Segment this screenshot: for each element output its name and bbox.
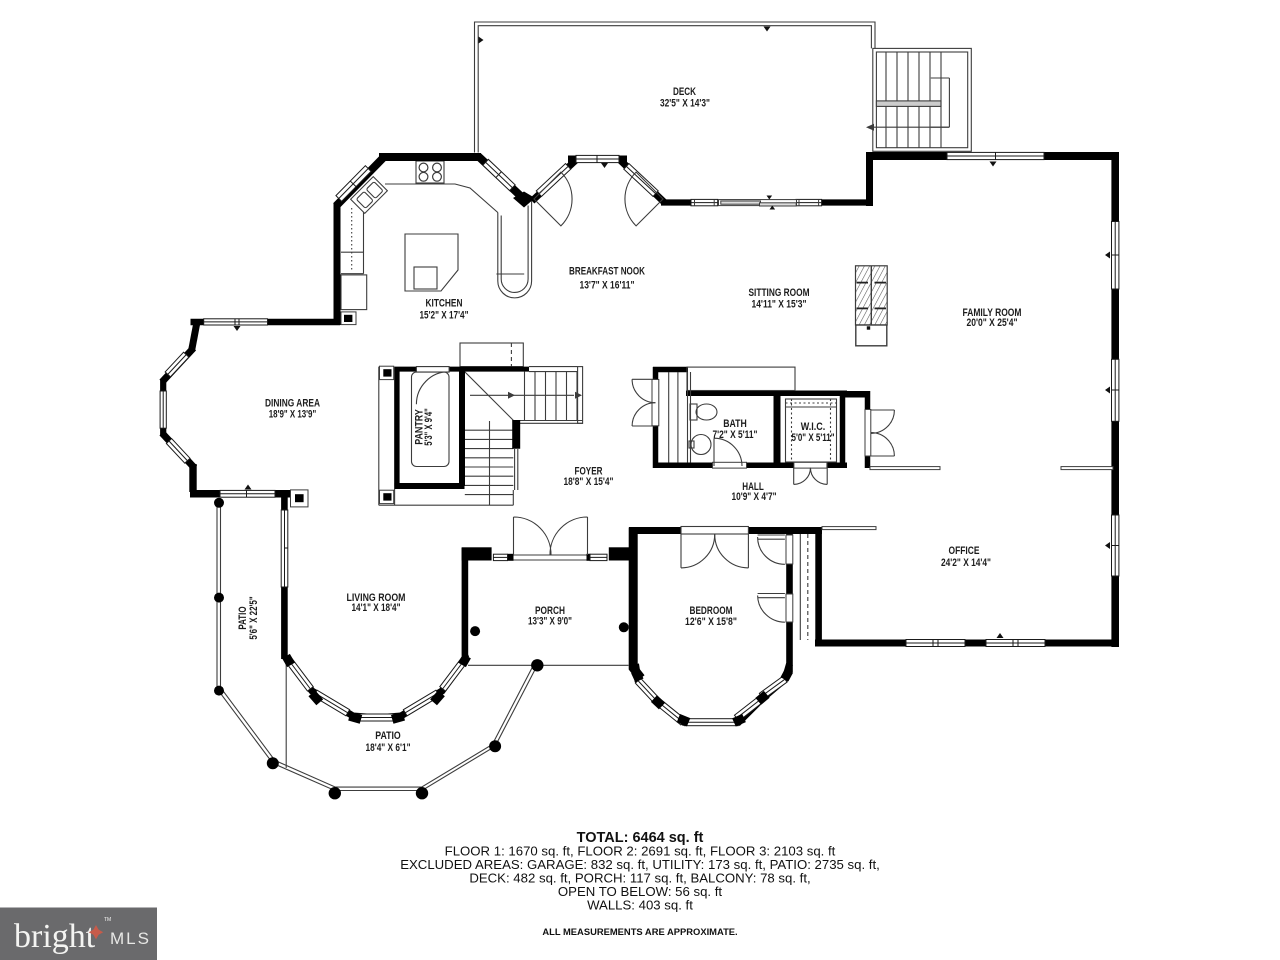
svg-text:5'0" X 5'11": 5'0" X 5'11" [792, 432, 835, 444]
svg-text:13'3" X 9'0": 13'3" X 9'0" [528, 616, 572, 628]
svg-text:20'0" X 25'4": 20'0" X 25'4" [967, 317, 1018, 329]
svg-text:TM: TM [104, 917, 111, 923]
svg-text:18'4" X 6'1": 18'4" X 6'1" [366, 742, 411, 754]
svg-text:5'6" X 22'5": 5'6" X 22'5" [248, 596, 260, 639]
svg-text:ALL MEASUREMENTS ARE APPROXIMA: ALL MEASUREMENTS ARE APPROXIMATE. [542, 926, 737, 937]
svg-text:10'9" X 4'7": 10'9" X 4'7" [732, 491, 777, 503]
svg-text:OFFICE: OFFICE [949, 545, 980, 557]
svg-text:24'2" X 14'4": 24'2" X 14'4" [941, 557, 991, 569]
svg-text:14'11" X 15'3": 14'11" X 15'3" [752, 299, 807, 311]
svg-text:WALLS: 403 sq. ft: WALLS: 403 sq. ft [587, 898, 693, 913]
svg-text:15'2" X 17'4": 15'2" X 17'4" [420, 310, 469, 322]
svg-text:DECK: DECK [673, 86, 697, 98]
svg-text:5'3" X 9'4": 5'3" X 9'4" [423, 408, 435, 446]
svg-text:32'5" X 14'3": 32'5" X 14'3" [660, 98, 710, 110]
svg-text:13'7" X 16'11": 13'7" X 16'11" [580, 280, 635, 292]
svg-text:18'8" X 15'4": 18'8" X 15'4" [564, 476, 614, 488]
svg-text:12'6" X 15'8": 12'6" X 15'8" [685, 616, 737, 628]
svg-text:14'1" X 18'4": 14'1" X 18'4" [352, 602, 401, 614]
svg-text:SITTING ROOM: SITTING ROOM [749, 287, 810, 299]
svg-text:MLS: MLS [110, 929, 151, 948]
svg-text:PATIO: PATIO [375, 730, 401, 742]
svg-text:7'2" X 5'11": 7'2" X 5'11" [713, 429, 758, 441]
svg-text:bright: bright [14, 918, 96, 955]
svg-text:KITCHEN: KITCHEN [426, 298, 463, 310]
svg-text:BREAKFAST NOOK: BREAKFAST NOOK [569, 266, 646, 278]
svg-text:18'9" X 13'9": 18'9" X 13'9" [269, 409, 317, 421]
